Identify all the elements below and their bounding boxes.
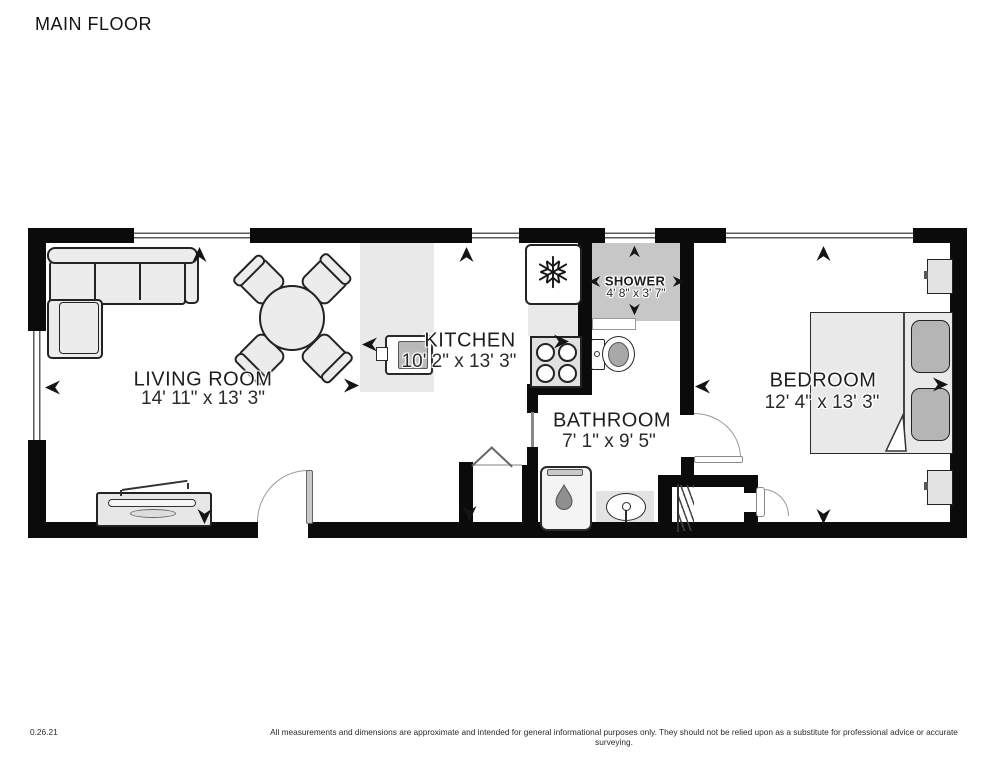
pillow bbox=[911, 320, 950, 373]
wall-segment bbox=[308, 522, 967, 538]
wall-segment bbox=[522, 465, 538, 525]
kitchen-dimensions: 10' 2" x 13' 3" bbox=[402, 351, 517, 373]
stove-burner bbox=[536, 364, 555, 383]
living-room-dimensions: 14' 11" x 13' 3" bbox=[141, 388, 265, 410]
version-stamp: 0.26.21 bbox=[30, 727, 58, 737]
tv-console-tick bbox=[187, 483, 189, 489]
arrow-right-icon bbox=[932, 376, 949, 393]
shower-curb bbox=[592, 318, 636, 330]
toilet-bowl-inner bbox=[608, 342, 629, 367]
arrow-up-icon bbox=[458, 246, 475, 263]
droplet-icon bbox=[553, 484, 575, 512]
sofa-cushion-divider bbox=[94, 263, 96, 300]
wall-segment bbox=[527, 395, 538, 413]
wall-segment bbox=[519, 228, 605, 243]
arrow-left-icon bbox=[361, 336, 378, 353]
bathroom-door-line bbox=[531, 412, 534, 447]
window bbox=[605, 228, 655, 243]
chair-back bbox=[317, 251, 353, 287]
entry-door-leaf bbox=[306, 470, 313, 524]
arrow-up-icon bbox=[815, 245, 832, 262]
arrow-right-icon bbox=[343, 377, 360, 394]
bathroom-label: BATHROOM bbox=[553, 410, 671, 433]
wall-segment bbox=[28, 228, 46, 331]
stove-burner bbox=[558, 364, 577, 383]
toilet-flush-knob bbox=[594, 351, 600, 357]
nightstand-knob bbox=[924, 482, 928, 490]
wall-segment bbox=[658, 487, 672, 524]
arrow-up-icon bbox=[191, 246, 208, 263]
wall-segment bbox=[681, 457, 694, 477]
disclaimer-text: All measurements and dimensions are appr… bbox=[260, 727, 968, 747]
arrow-right-icon bbox=[672, 275, 685, 288]
arrow-down-icon bbox=[628, 303, 641, 316]
dining-table bbox=[259, 285, 325, 351]
bedroom-door-swing-arc bbox=[694, 413, 741, 458]
arrow-down-icon bbox=[815, 508, 832, 525]
shower-dimensions: 4' 8" x 3' 7" bbox=[606, 286, 665, 300]
nightstand bbox=[927, 470, 953, 505]
arrow-down-icon bbox=[461, 505, 478, 522]
tv-antenna-line bbox=[122, 480, 188, 491]
snowflake-icon bbox=[534, 252, 572, 292]
wall-segment bbox=[527, 447, 538, 465]
sofa-back bbox=[47, 247, 198, 264]
tv-console-dish bbox=[130, 509, 176, 518]
sofa-cushion-divider bbox=[139, 263, 141, 300]
bedroom-door-leaf bbox=[694, 456, 743, 463]
kitchen-label: KITCHEN bbox=[424, 330, 515, 353]
water-heater-lid bbox=[547, 469, 583, 476]
arrow-down-icon bbox=[196, 508, 213, 525]
kitchen-counter bbox=[528, 302, 578, 336]
vanity-faucet-stem bbox=[625, 510, 627, 522]
arrow-right-icon bbox=[553, 333, 570, 350]
window bbox=[472, 228, 519, 243]
pantry-opening-line bbox=[473, 464, 522, 466]
bedroom-dimensions: 12' 4" x 13' 3" bbox=[765, 392, 880, 414]
arrow-left-icon bbox=[588, 275, 601, 288]
nightstand-knob bbox=[924, 271, 928, 279]
tv-console-tick bbox=[120, 490, 122, 496]
pillow bbox=[911, 388, 950, 441]
chair-back bbox=[231, 253, 267, 289]
entry-door-swing-arc bbox=[257, 470, 308, 522]
window bbox=[134, 228, 250, 243]
closet-door-swing-arc bbox=[763, 489, 789, 516]
blanket-fold bbox=[883, 413, 909, 453]
arrow-left-icon bbox=[44, 379, 61, 396]
arrow-left-icon bbox=[694, 378, 711, 395]
floor-plan: MAIN FLOOR bbox=[0, 0, 995, 768]
wall-segment bbox=[680, 243, 694, 415]
sofa-chaise-cushion bbox=[59, 302, 99, 354]
page-title: MAIN FLOOR bbox=[35, 14, 152, 35]
nightstand bbox=[927, 259, 953, 294]
closet-door-leaf bbox=[756, 487, 765, 517]
closet-hangers bbox=[679, 485, 694, 531]
bedroom-label: BEDROOM bbox=[770, 370, 877, 393]
tv-console-shelf bbox=[108, 499, 196, 507]
arrow-up-icon bbox=[628, 245, 641, 258]
wall-segment bbox=[655, 228, 726, 243]
window bbox=[726, 228, 913, 243]
wall-segment bbox=[658, 475, 758, 487]
bathroom-dimensions: 7' 1" x 9' 5" bbox=[562, 431, 656, 453]
wall-segment bbox=[250, 228, 472, 243]
